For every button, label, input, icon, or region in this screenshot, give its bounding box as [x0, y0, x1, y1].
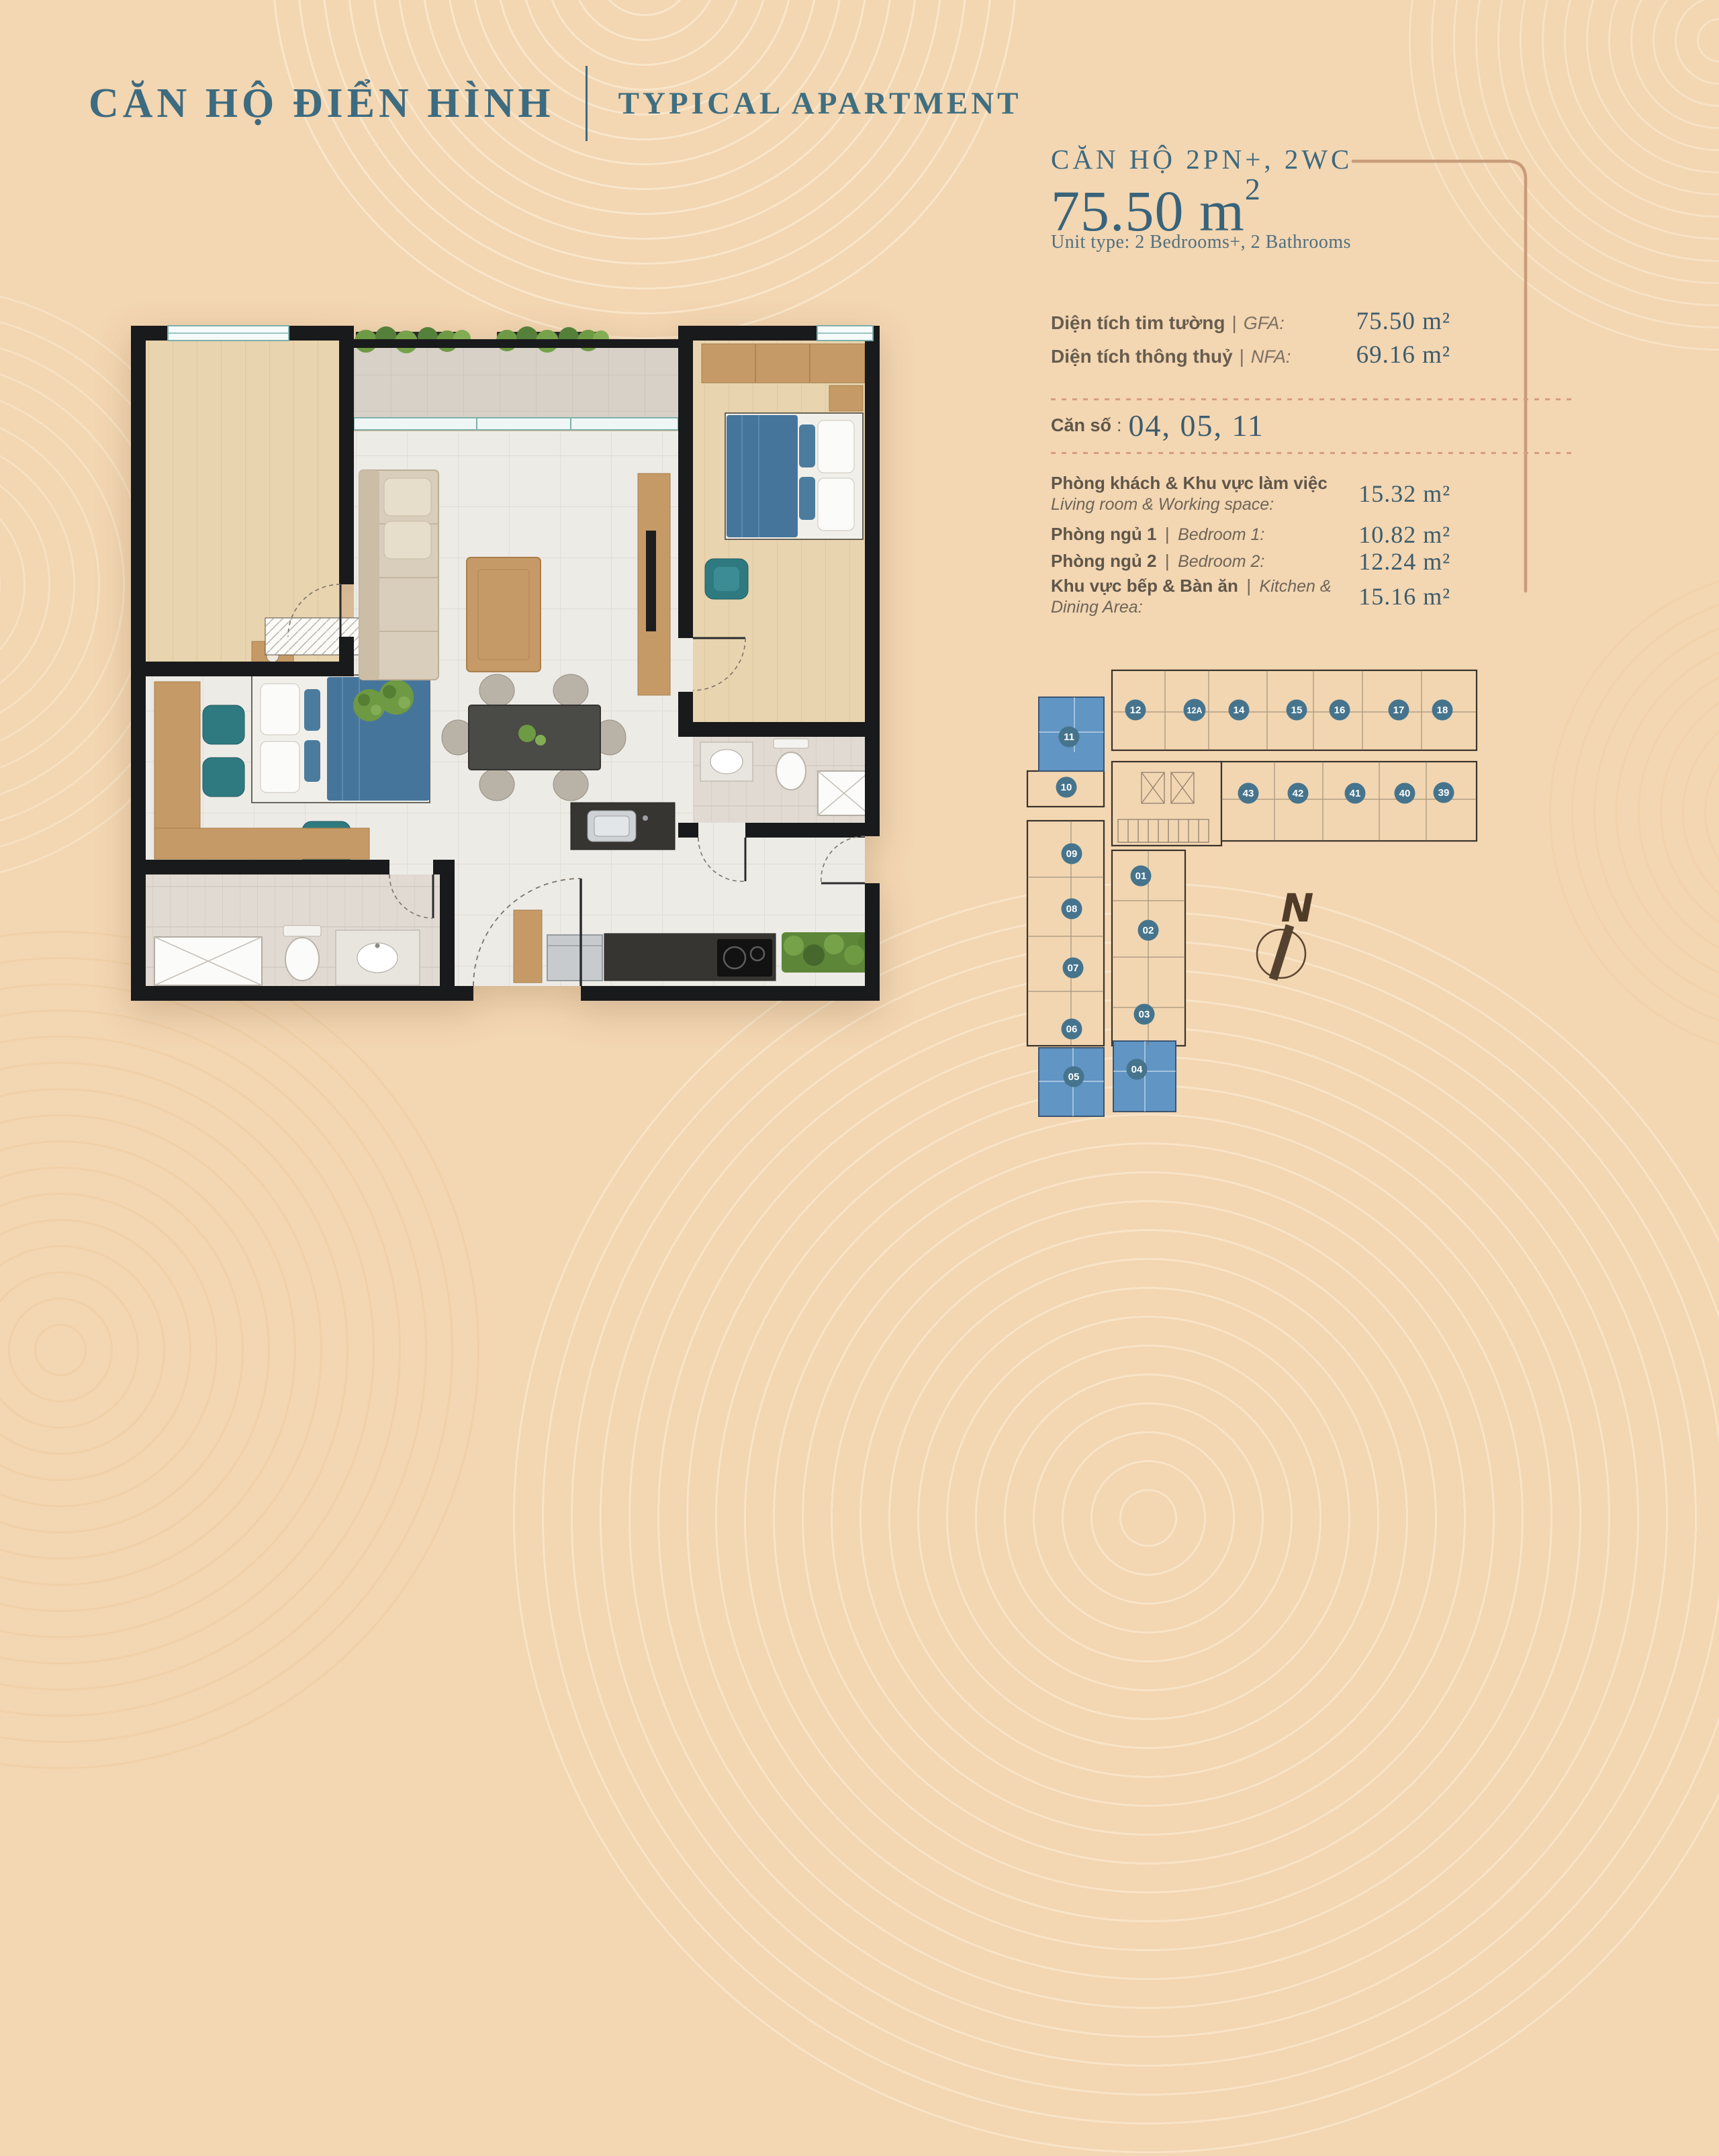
room-label-vi: Phòng khách & Khu vực làm việc	[1051, 472, 1328, 494]
toilet	[283, 926, 321, 936]
unit-numbers-colon: :	[1117, 415, 1122, 436]
room-row-kitchen: Khu vực bếp & Bàn ăn | Kitchen & Dining …	[1051, 575, 1450, 619]
unit-badge-label: 12A	[1187, 706, 1203, 715]
dining-chair	[553, 674, 588, 707]
accent-pillow	[304, 689, 320, 731]
page-header: CĂN HỘ ĐIỂN HÌNH TYPICAL APARTMENT	[89, 66, 1022, 141]
unit-badge-label: 05	[1068, 1071, 1080, 1083]
page-title-en: TYPICAL APARTMENT	[618, 85, 1022, 122]
tall-cabinet	[514, 910, 542, 983]
pillow	[818, 420, 854, 473]
unit-info-panel: CĂN HỘ 2PN+, 2WC 75.50 m2 Unit type: 2 B…	[1051, 138, 1581, 621]
unit-badge-label: 39	[1438, 787, 1450, 799]
unit-badge-label: 18	[1437, 705, 1448, 716]
room-labels: Phòng ngủ 1 | Bedroom 1:	[1051, 523, 1264, 545]
dining-chair	[479, 768, 514, 801]
unit-badge-label: 04	[1131, 1064, 1143, 1075]
room-label-vi: Phòng ngủ 1	[1051, 524, 1156, 544]
page-title-vi: CĂN HỘ ĐIỂN HÌNH	[89, 80, 555, 128]
unit-badge-label: 43	[1243, 788, 1254, 799]
plant-icon	[353, 689, 385, 721]
compass-icon: N	[1257, 885, 1313, 979]
sofa-cushion	[384, 478, 431, 516]
appliance	[547, 935, 602, 981]
wardrobe	[702, 344, 865, 383]
label-separator: |	[1165, 551, 1170, 571]
room-value: 10.82 m²	[1358, 521, 1450, 549]
office-chair	[203, 758, 244, 797]
desk	[154, 682, 200, 838]
contour-pattern	[0, 927, 483, 1773]
room-row-bedroom1: Phòng ngủ 1 | Bedroom 1: 10.82 m²	[1051, 521, 1450, 549]
unit-badge-label: 02	[1143, 925, 1154, 936]
label-separator: |	[1232, 312, 1237, 334]
tv-icon	[646, 531, 656, 631]
room-labels: Phòng ngủ 2 | Bedroom 2:	[1051, 550, 1264, 572]
unit-badge-label: 10	[1061, 782, 1072, 793]
unit-numbers-row: Căn số : 04, 05, 11	[1051, 408, 1264, 443]
unit-badge-label: 41	[1350, 788, 1361, 799]
unit-badge-label: 09	[1066, 848, 1078, 860]
unit-badge-label: 08	[1066, 903, 1078, 915]
floor-plate-diagram: 1212A14151617181110434241403909080706010…	[1007, 658, 1491, 1128]
blanket	[727, 415, 798, 537]
sofa-cushion	[384, 521, 431, 559]
room-row-living: Phòng khách & Khu vực làm việc Living ro…	[1051, 472, 1450, 515]
unit-numbers-value: 04, 05, 11	[1129, 408, 1264, 443]
dashed-separator	[1051, 452, 1575, 454]
unit-badge-label: 40	[1399, 788, 1411, 799]
metric-label-en: NFA:	[1251, 347, 1291, 367]
room-labels: Phòng khách & Khu vực làm việc Living ro…	[1051, 472, 1328, 515]
metric-row-gfa: Diện tích tim tường | GFA: 75.50 m²	[1051, 307, 1450, 336]
unit-badge-label: 07	[1068, 962, 1079, 974]
accent-pillow	[799, 424, 815, 467]
table-plant-icon	[518, 725, 536, 742]
room-value: 15.32 m²	[1358, 480, 1450, 508]
room-label-vi: Phòng ngủ 2	[1051, 551, 1156, 571]
accent-pillow	[799, 477, 815, 520]
label-separator: |	[1246, 576, 1251, 596]
desk	[154, 828, 369, 859]
unit-type-line: Unit type: 2 Bedrooms+, 2 Bathrooms	[1051, 232, 1351, 253]
pillow	[261, 742, 299, 793]
metric-label-vi: Diện tích thông thuỷ	[1051, 346, 1233, 367]
accent-pillow	[304, 740, 320, 782]
room-label-en: Living room & Working space:	[1051, 494, 1328, 515]
metric-label-vi: Diện tích tim tường	[1051, 312, 1225, 334]
contour-pattern	[262, 0, 1027, 349]
nightstand	[829, 386, 863, 411]
dining-chair	[553, 768, 588, 801]
unit-badge-label: 01	[1135, 870, 1147, 882]
metric-row-nfa: Diện tích thông thuỷ | NFA: 69.16 m²	[1051, 341, 1450, 369]
unit-badge-label: 42	[1293, 788, 1304, 799]
contour-pattern	[1538, 557, 1719, 1068]
room-label-en: Bedroom 2:	[1178, 552, 1264, 571]
sliding-glass-door	[354, 418, 678, 430]
unit-badge-label: 14	[1234, 705, 1245, 716]
toilet	[774, 739, 808, 748]
unit-badge-label: 15	[1291, 705, 1303, 716]
title-divider	[586, 66, 588, 141]
label-separator: |	[1240, 346, 1244, 367]
label-separator: |	[1165, 524, 1170, 544]
compass-north-label: N	[1281, 885, 1314, 931]
unit-badge-label: 17	[1393, 705, 1405, 716]
apartment-floor-plan	[101, 302, 907, 1014]
room-label-vi: Khu vực bếp & Bàn ăn	[1051, 576, 1238, 596]
dining-chair	[479, 674, 514, 707]
office-chair	[203, 705, 244, 744]
unit-badge-label: 16	[1334, 705, 1346, 716]
unit-heading: CĂN HỘ 2PN+, 2WC	[1051, 143, 1352, 175]
room-label-en: Bedroom 1:	[1178, 525, 1264, 544]
metric-value: 75.50 m²	[1356, 307, 1450, 336]
pillow	[818, 478, 854, 531]
room-value: 15.16 m²	[1358, 582, 1450, 611]
room-row-bedroom2: Phòng ngủ 2 | Bedroom 2: 12.24 m²	[1051, 547, 1450, 576]
pillow	[261, 684, 299, 735]
metric-label-en: GFA:	[1244, 313, 1285, 334]
unit-numbers-label: Căn số	[1051, 415, 1111, 436]
room-value: 12.24 m²	[1358, 547, 1450, 576]
unit-badge-label: 12	[1130, 705, 1142, 716]
unit-badge-label: 06	[1066, 1024, 1078, 1035]
metric-value: 69.16 m²	[1356, 341, 1450, 369]
unit-area-sup: 2	[1245, 172, 1260, 206]
plant-hedge-icon	[782, 932, 874, 973]
dashed-separator	[1051, 398, 1575, 400]
room-labels: Khu vực bếp & Bàn ăn | Kitchen & Dining …	[1051, 575, 1358, 619]
unit-badge-label: 11	[1064, 731, 1074, 743]
unit-badge-label: 03	[1139, 1009, 1150, 1020]
